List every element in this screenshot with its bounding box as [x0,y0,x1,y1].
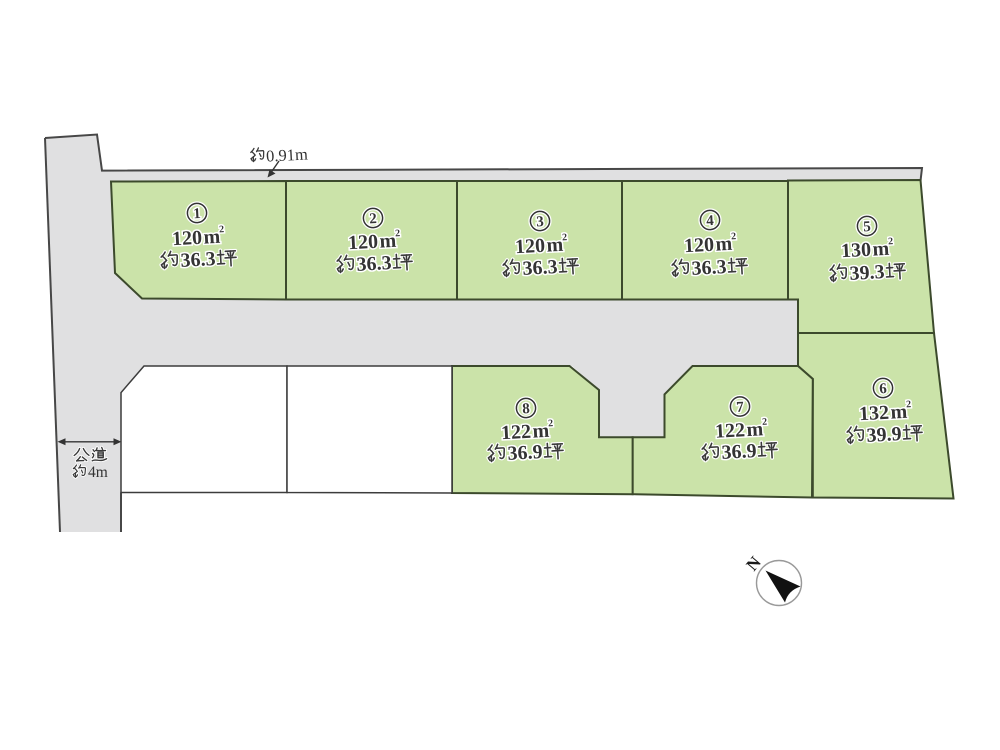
svg-text:5: 5 [863,219,871,235]
svg-text:120: 120 [684,234,715,258]
svg-text:130: 130 [841,239,872,263]
svg-text:2: 2 [369,211,377,227]
svg-text:6: 6 [879,381,888,397]
svg-text:36.3: 36.3 [522,256,558,280]
svg-text:7: 7 [736,399,745,415]
svg-text:39.3: 39.3 [849,261,885,285]
svg-text:122: 122 [715,419,746,443]
svg-text:120: 120 [515,235,546,259]
svg-text:8: 8 [522,401,530,417]
svg-text:4m: 4m [88,464,108,481]
svg-text:4: 4 [706,213,715,229]
svg-text:2: 2 [762,417,768,428]
svg-text:36.3: 36.3 [356,252,392,276]
svg-text:2: 2 [548,418,554,429]
svg-text:2: 2 [906,399,912,410]
svg-text:39.9: 39.9 [866,423,902,447]
svg-text:1: 1 [193,206,201,222]
svg-text:2: 2 [219,224,225,235]
svg-text:2: 2 [888,236,894,247]
svg-text:0.91m: 0.91m [266,144,309,165]
svg-text:2: 2 [731,231,737,242]
svg-text:2: 2 [395,228,401,239]
svg-text:120: 120 [348,231,379,255]
svg-text:122: 122 [501,421,532,445]
svg-text:36.3: 36.3 [180,248,216,272]
svg-text:36.9: 36.9 [721,440,757,464]
svg-text:120: 120 [172,227,203,251]
svg-text:36.9: 36.9 [507,441,543,465]
svg-text:3: 3 [536,214,544,230]
svg-text:2: 2 [562,232,568,243]
svg-text:132: 132 [859,402,890,426]
svg-text:36.3: 36.3 [691,256,727,280]
